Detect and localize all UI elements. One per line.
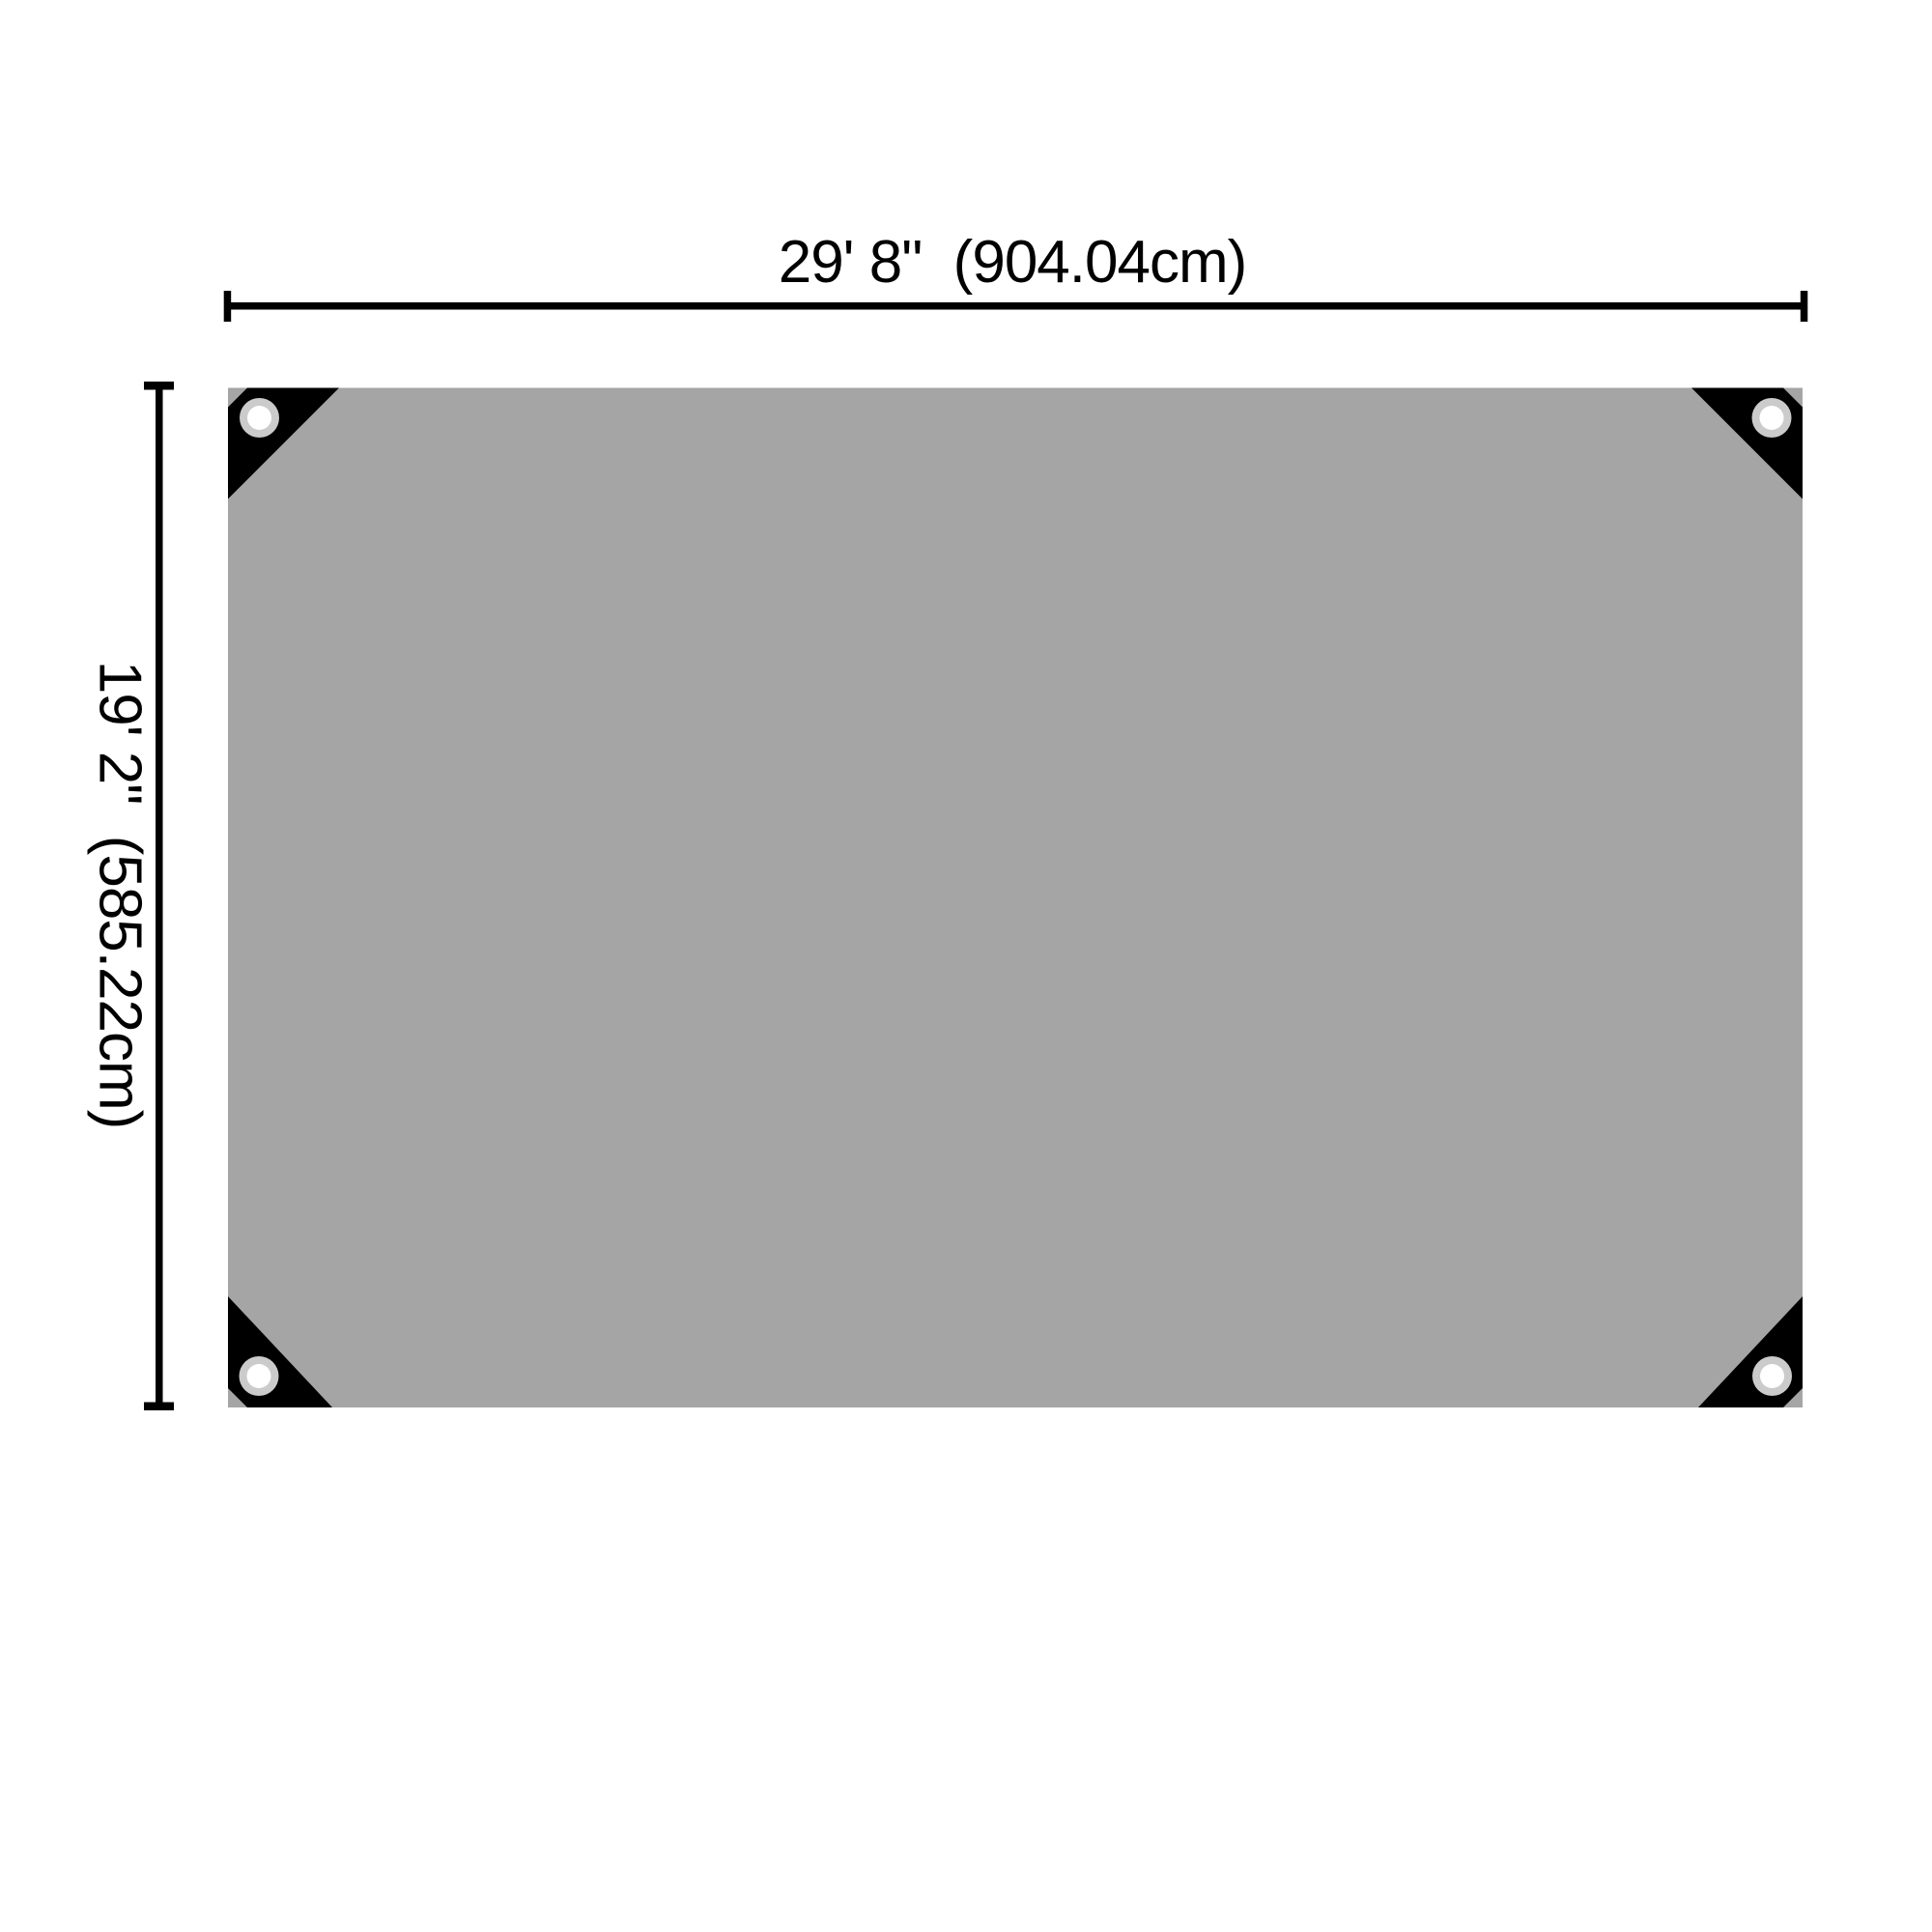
svg-text:29' 8" (904.04cm): 29' 8" (904.04cm) bbox=[779, 229, 1247, 296]
svg-text:19' 2" (585.22cm): 19' 2" (585.22cm) bbox=[87, 661, 154, 1129]
